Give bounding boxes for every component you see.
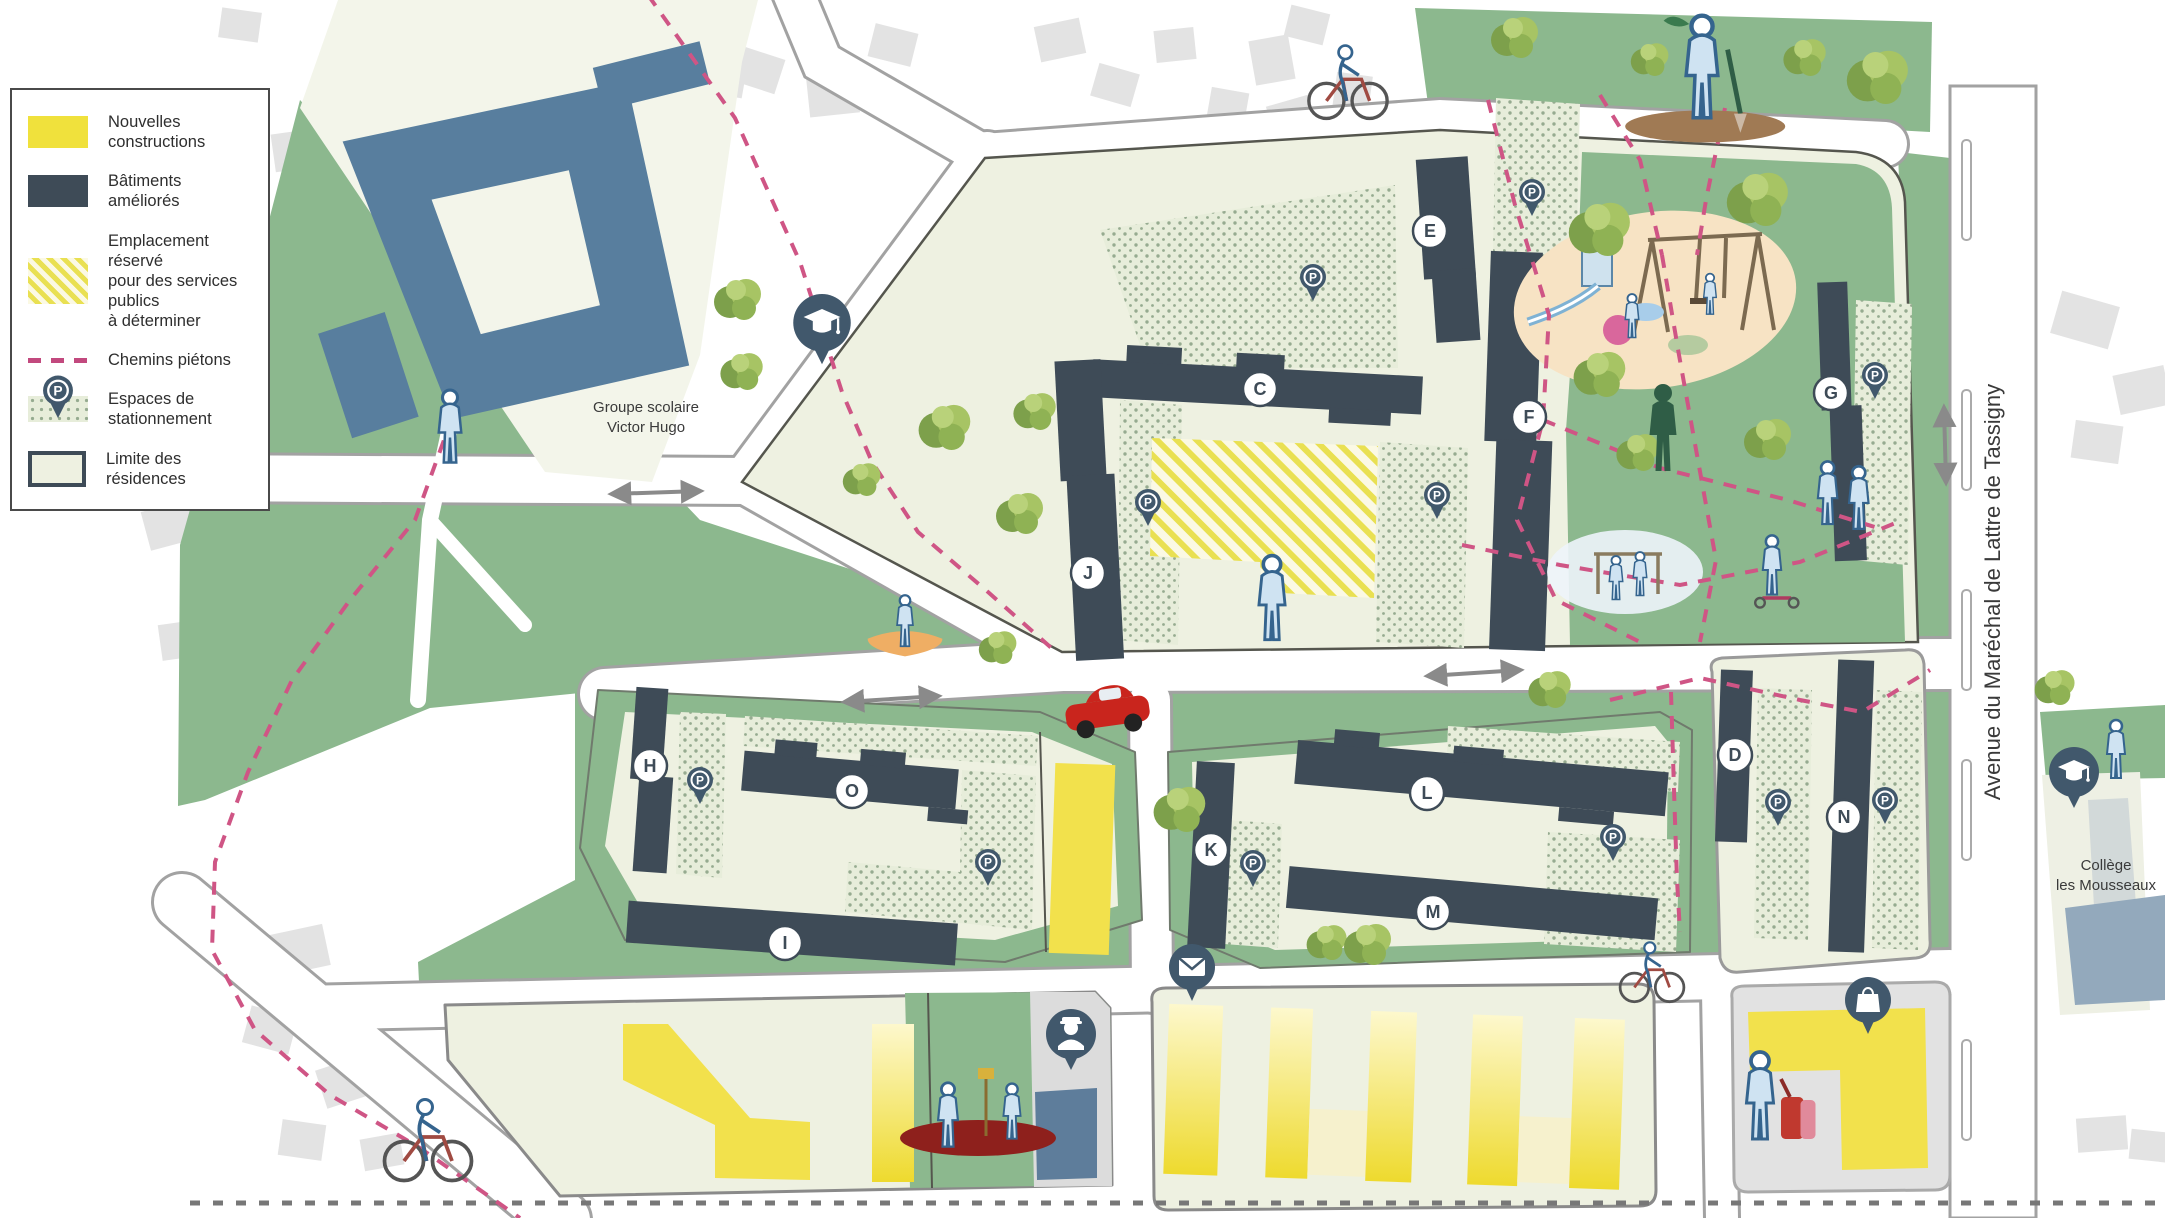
road (1718, 992, 1722, 1218)
background-building (2112, 365, 2165, 415)
building-badge-L: L (1410, 776, 1444, 810)
residence-block-upper (742, 98, 1918, 661)
building-badge-H: H (633, 749, 667, 783)
building-badge-K: K (1194, 833, 1228, 867)
background-building (1284, 5, 1331, 46)
two-way-arrow (1944, 408, 1946, 482)
tree (720, 353, 762, 390)
college-building (2065, 895, 2165, 1005)
legend-label: Emplacement réservé pour des services pu… (108, 231, 252, 332)
background-building (1153, 27, 1196, 63)
building-badge-M: M (1416, 895, 1450, 929)
background-building (2050, 291, 2120, 350)
college-label-line1: Collège (2081, 857, 2132, 874)
background-building (2071, 420, 2124, 464)
svg-text:N: N (1838, 807, 1851, 827)
bottom-block-middle (1152, 984, 1656, 1210)
background-building (278, 1119, 327, 1161)
building-badge-I: I (768, 926, 802, 960)
building-badge-F: F (1512, 400, 1546, 434)
svg-text:O: O (845, 781, 859, 801)
background-building (2129, 1129, 2165, 1163)
building-badge-G: G (1814, 376, 1848, 410)
building-badge-N: N (1827, 800, 1861, 834)
background-building (1034, 18, 1086, 63)
pedestrian-paths-swatch (28, 358, 88, 363)
road (1150, 700, 1152, 992)
legend-label: Bâtiments améliorés (108, 171, 252, 211)
building-badge-C: C (1243, 372, 1277, 406)
residence-block-east (1711, 650, 1930, 972)
building-badge-E: E (1413, 214, 1447, 248)
legend-label: Chemins piétons (108, 350, 231, 370)
masterplan-map: P (0, 0, 2165, 1218)
svg-text:F: F (1524, 407, 1535, 427)
residence-limits-swatch (28, 451, 86, 487)
background-building (218, 7, 262, 42)
new-construction-building (872, 1024, 914, 1182)
new-construction-building (1049, 763, 1116, 955)
svg-text:L: L (1422, 783, 1433, 803)
legend-label: Nouvelles constructions (108, 112, 252, 152)
building-badge-O: O (835, 774, 869, 808)
background-building (2076, 1115, 2128, 1152)
parking-spaces-swatch (28, 396, 88, 422)
svg-text:G: G (1824, 383, 1838, 403)
reserved-services-swatch (28, 258, 88, 304)
parking-pin-icon (40, 372, 76, 420)
svg-text:J: J (1083, 563, 1093, 583)
school-label-line2: Victor Hugo (607, 419, 685, 436)
map-canvas: P (0, 0, 2165, 1218)
residence-block-west (580, 687, 1142, 966)
svg-text:C: C (1254, 379, 1267, 399)
legend-item-improved-buildings: Bâtiments améliorés (28, 171, 252, 211)
college-label-line2: les Mousseaux (2056, 877, 2157, 894)
improved-buildings-swatch (28, 175, 88, 207)
legend-panel: Nouvelles constructions Bâtiments amélio… (10, 88, 270, 511)
legend-item-residence-limits: Limite des résidences (28, 449, 252, 489)
tree (2035, 670, 2075, 705)
tree (714, 279, 761, 320)
background-building (360, 1133, 405, 1171)
svg-text:H: H (644, 756, 657, 776)
legend-item-pedestrian-paths: Chemins piétons (28, 350, 252, 370)
svg-text:E: E (1424, 221, 1436, 241)
school-label-line1: Groupe scolaire (593, 399, 699, 416)
background-building (1090, 63, 1140, 107)
legend-label: Espaces de stationnement (108, 389, 212, 429)
legend-item-new-constructions: Nouvelles constructions (28, 112, 252, 152)
svg-text:D: D (1729, 745, 1742, 765)
avenue-label: Avenue du Maréchal de Lattre de Tassigny (1980, 384, 2005, 800)
legend-item-reserved-public-services: Emplacement réservé pour des services pu… (28, 231, 252, 332)
svg-text:K: K (1205, 840, 1218, 860)
legend-item-parking-spaces: Espaces de stationnement (28, 389, 252, 429)
new-constructions-swatch (28, 116, 88, 148)
background-building (1248, 34, 1295, 85)
building-badge-D: D (1718, 738, 1752, 772)
road (792, 0, 988, 158)
fitness-area (1547, 530, 1703, 614)
svg-text:M: M (1426, 902, 1441, 922)
building-badge-J: J (1071, 556, 1105, 590)
background-building (868, 23, 919, 67)
svg-text:I: I (782, 933, 787, 953)
legend-label: Limite des résidences (106, 449, 252, 489)
